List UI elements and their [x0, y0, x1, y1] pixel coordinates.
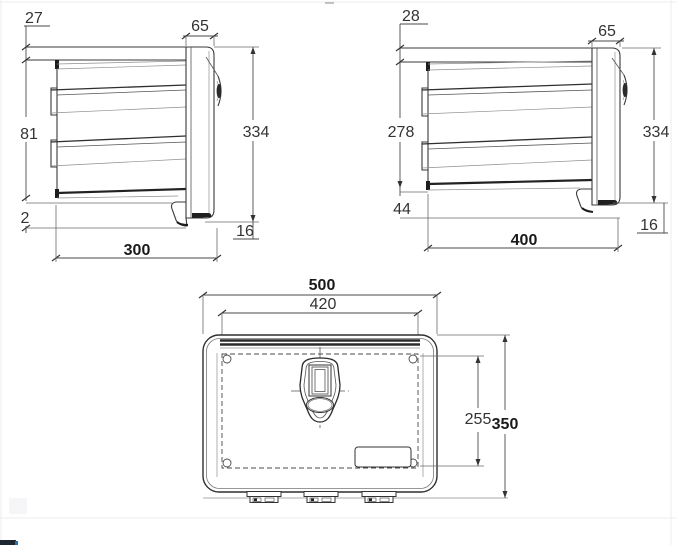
dim-16-left: 16: [233, 222, 259, 240]
dim-27: 27: [24, 10, 50, 27]
dim-column-left: 81 2: [20, 26, 186, 233]
dim-350-label: 350: [492, 416, 519, 433]
dim-334-label: 334: [243, 124, 270, 141]
dim-16-right: 16: [637, 203, 668, 234]
dim-65-label: 65: [598, 23, 616, 40]
faint-square-artifact: [9, 498, 27, 514]
dim-16-label: 16: [236, 223, 254, 240]
front-view-500: 500 420: [199, 277, 518, 503]
lid-profile: [592, 48, 620, 205]
label-plate: [355, 447, 411, 467]
dim-400-label: 400: [511, 232, 538, 249]
dim-65-label: 65: [191, 18, 209, 35]
dim-28: 28: [400, 8, 428, 25]
dim-44-label: 44: [393, 201, 411, 218]
dim-27-label: 27: [25, 10, 43, 27]
lock-side-cylinder: [217, 84, 222, 98]
dim-300-label: 300: [124, 242, 151, 259]
hinge-center: [304, 492, 338, 503]
corner-dark-bar-tip: [15, 541, 18, 545]
dim-334-label: 334: [643, 124, 670, 141]
dim-334-left: 334: [205, 47, 269, 222]
dim-65-right: 65: [588, 23, 624, 47]
drawing-page: 27 81 2 65 33: [0, 0, 677, 545]
dim-81-label: 81: [20, 126, 38, 143]
side-view-300: 27 81 2 65 33: [20, 10, 269, 262]
rib-tab-lower: [422, 142, 428, 170]
dim-255-label: 255: [465, 411, 492, 428]
dim-278-label: 278: [388, 124, 415, 141]
body-bottom-edge: [57, 189, 186, 193]
side-view-400: 28 278 44 65 334: [388, 8, 670, 252]
hinge-left: [247, 492, 281, 503]
toolbox-technical-drawing: 27 81 2 65 33: [0, 0, 677, 545]
rib-tab-upper: [51, 88, 57, 115]
corner-dark-bar: [0, 540, 16, 545]
lock-cylinder-oval: [307, 398, 334, 413]
dim-16-label: 16: [640, 217, 658, 234]
dim-2-label: 2: [21, 210, 30, 227]
mounting-foot: [172, 202, 188, 226]
hinge-right: [362, 492, 396, 503]
dim-500-label: 500: [309, 277, 336, 294]
bracket-slot-top: [55, 60, 59, 69]
lock-side-cylinder: [623, 83, 628, 97]
dim-420-label: 420: [310, 296, 337, 313]
rib-tab-upper: [422, 88, 428, 116]
dim-65-left: 65: [182, 18, 218, 46]
body-bottom-edge: [428, 180, 592, 184]
rib-tab-lower: [51, 140, 57, 167]
lid-profile: [186, 47, 214, 218]
bracket-slot-bottom: [426, 181, 430, 190]
dim-28-label: 28: [402, 8, 420, 25]
